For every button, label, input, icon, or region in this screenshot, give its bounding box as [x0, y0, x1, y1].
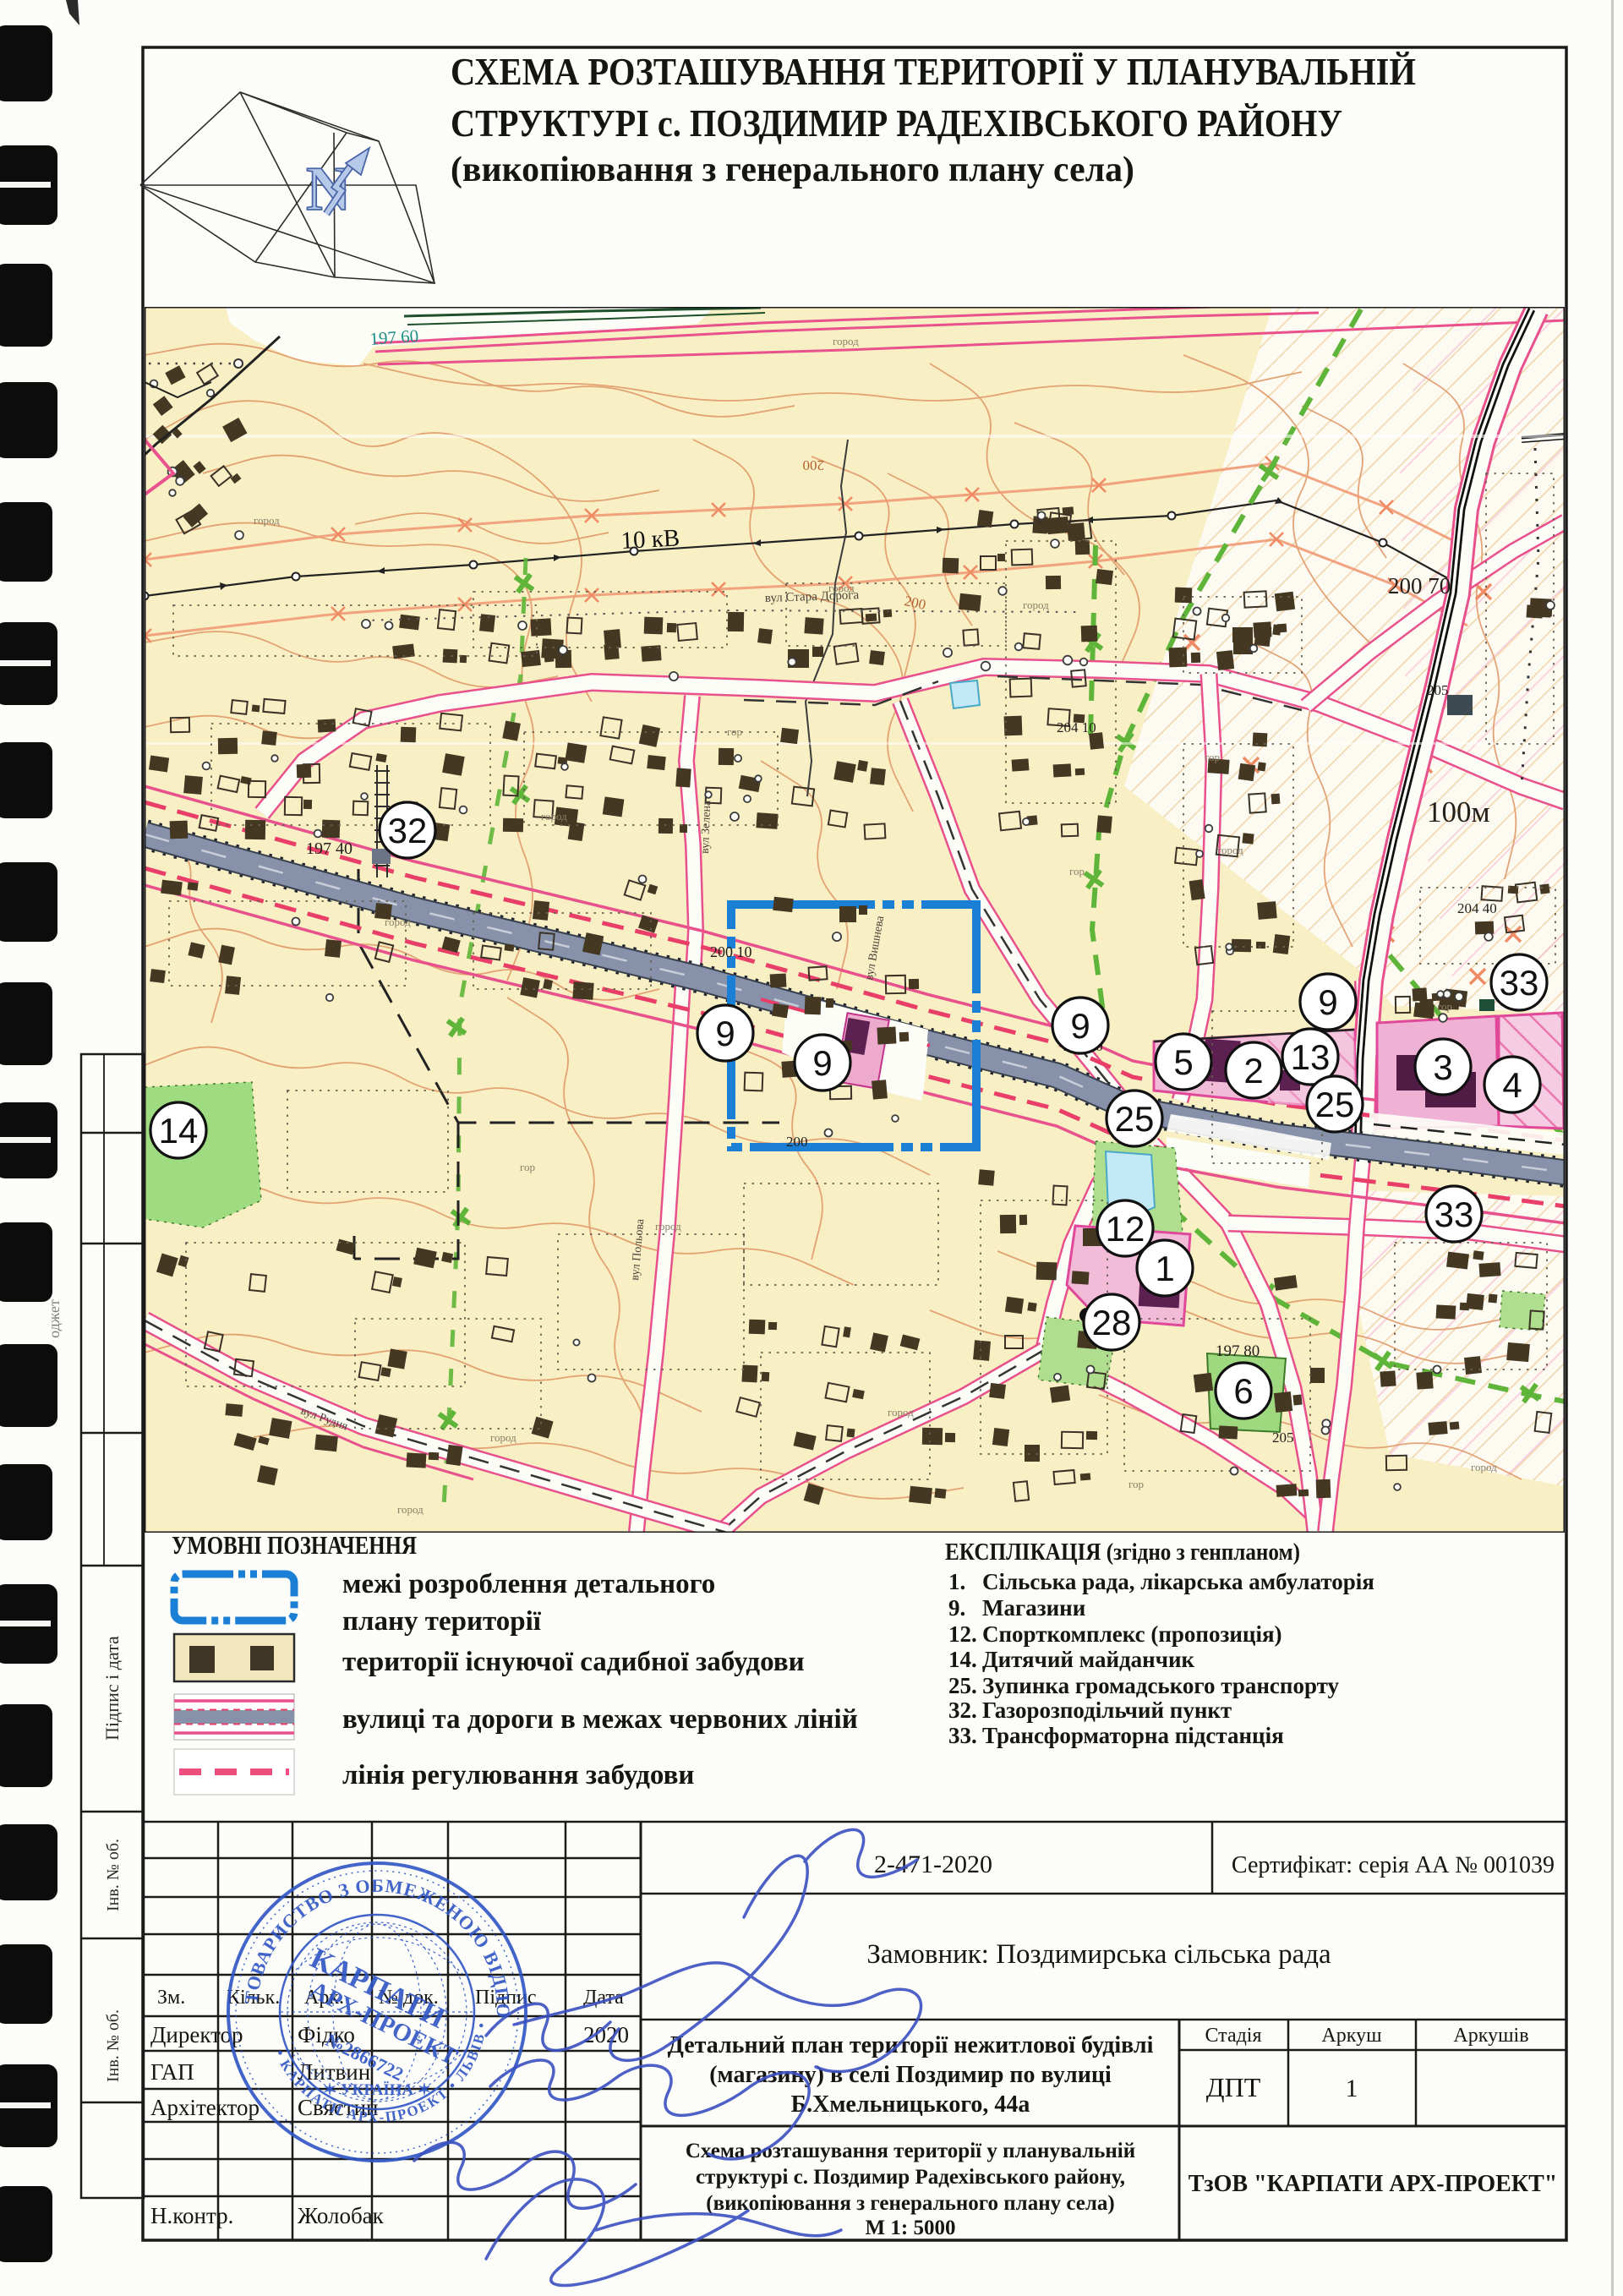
svg-text:Інв. № об.: Інв. № об.: [104, 1839, 123, 1911]
svg-text:200: 200: [803, 457, 825, 473]
svg-text:Сільська рада, лікарська амбул: Сільська рада, лікарська амбулаторія: [982, 1569, 1374, 1594]
svg-text:город: город: [1023, 599, 1049, 611]
svg-text:10 кВ: 10 кВ: [620, 524, 680, 555]
svg-text:3: 3: [1433, 1047, 1452, 1087]
svg-text:території існуючої садибної за: території існуючої садибної забудови: [342, 1647, 805, 1677]
svg-text:32.: 32.: [948, 1697, 977, 1723]
svg-text:(викопіювання з генерального п: (викопіювання з генерального плану села): [706, 2192, 1114, 2215]
svg-text:33: 33: [1500, 963, 1539, 1003]
svg-text:9: 9: [715, 1014, 735, 1053]
svg-text:плану території: плану території: [342, 1606, 542, 1637]
svg-text:город: город: [655, 1220, 681, 1233]
svg-text:Дитячий майданчик: Дитячий майданчик: [982, 1647, 1194, 1672]
svg-text:Підпис і дата: Підпис і дата: [101, 1636, 123, 1741]
svg-text:5: 5: [1173, 1042, 1193, 1082]
svg-text:Зупинка громадського транспорт: Зупинка громадського транспорту: [982, 1673, 1340, 1698]
svg-text:197 80: 197 80: [1216, 1342, 1260, 1360]
svg-text:1.: 1.: [948, 1569, 965, 1594]
svg-text:межі розроблення детального: межі розроблення детального: [342, 1569, 715, 1599]
svg-text:гор: гор: [1069, 865, 1085, 877]
svg-text:205: 205: [1272, 1430, 1294, 1446]
svg-text:Стадія: Стадія: [1205, 2025, 1261, 2047]
svg-text:Магазини: Магазини: [982, 1595, 1085, 1621]
svg-text:М 1: 5000: М 1: 5000: [866, 2217, 956, 2239]
svg-text:ЕКСПЛІКАЦІЯ (згідно з генплано: ЕКСПЛІКАЦІЯ (згідно з генпланом): [945, 1539, 1300, 1566]
svg-text:200 10: 200 10: [710, 943, 752, 960]
svg-text:город: город: [833, 335, 859, 347]
svg-text:город: город: [828, 582, 855, 594]
svg-text:Трансформаторна підстанція: Трансформаторна підстанція: [982, 1723, 1284, 1748]
svg-text:гор: гор: [1128, 1478, 1144, 1490]
svg-text:1: 1: [1155, 1249, 1174, 1288]
svg-text:9: 9: [1070, 1006, 1090, 1046]
svg-text:город: город: [385, 916, 411, 928]
svg-text:200 70: 200 70: [1388, 573, 1451, 599]
svg-text:Схема розташування території у: Схема розташування території у плануваль…: [686, 2140, 1135, 2162]
svg-text:9: 9: [812, 1043, 832, 1083]
svg-text:Зм.: Зм.: [157, 1987, 185, 2009]
svg-text:25.: 25.: [948, 1673, 977, 1698]
svg-text:Н.контр.: Н.контр.: [150, 2203, 233, 2228]
svg-text:Замовник: Поздимирська сільськ: Замовник: Поздимирська сільська рада: [866, 1939, 1331, 1970]
svg-text:25: 25: [1115, 1099, 1155, 1139]
svg-text:ДПТ: ДПТ: [1206, 2072, 1261, 2102]
svg-text:12.: 12.: [948, 1621, 977, 1647]
svg-text:Спорткомплекс (пропозиція): Спорткомплекс (пропозиція): [982, 1621, 1282, 1647]
svg-text:город: город: [1217, 844, 1243, 856]
svg-text:(викопіювання з генерального п: (викопіювання з генерального плану села): [451, 150, 1134, 189]
svg-text:197 60: 197 60: [369, 325, 419, 349]
svg-text:гор: гор: [1437, 1000, 1452, 1013]
svg-text:4: 4: [1502, 1065, 1522, 1105]
svg-text:13: 13: [1291, 1037, 1331, 1077]
svg-text:204 40: 204 40: [1457, 900, 1497, 916]
svg-text:1: 1: [1346, 2075, 1358, 2102]
svg-text:структурі с. Поздимир Радехівс: структурі с. Поздимир Радехівського райо…: [696, 2166, 1125, 2189]
svg-text:город: город: [254, 514, 280, 527]
svg-text:28: 28: [1092, 1303, 1132, 1342]
svg-text:город: город: [1471, 1461, 1497, 1473]
svg-text:✶ УКРАЇНА ✶: ✶ УКРАЇНА ✶: [323, 2081, 431, 2099]
svg-text:СТРУКТУРІ с. ПОЗДИМИР РАДЕХІВС: СТРУКТУРІ с. ПОЗДИМИР РАДЕХІВСЬКОГО РАЙО…: [451, 101, 1342, 145]
svg-text:гор: гор: [1205, 751, 1220, 763]
svg-text:14.: 14.: [948, 1647, 977, 1672]
svg-text:город: город: [888, 1406, 914, 1419]
svg-text:СХЕМА РОЗТАШУВАННЯ ТЕРИТОРІЇ У: СХЕМА РОЗТАШУВАННЯ ТЕРИТОРІЇ У ПЛАНУВАЛЬ…: [451, 50, 1416, 93]
svg-text:Інв. № об.: Інв. № об.: [104, 2009, 123, 2082]
svg-text:город: город: [541, 810, 567, 823]
svg-text:вулиці та дороги в межах черво: вулиці та дороги в межах червоних ліній: [342, 1704, 858, 1735]
svg-text:город: город: [490, 1431, 516, 1444]
svg-text:12: 12: [1106, 1209, 1145, 1249]
svg-text:33: 33: [1434, 1194, 1474, 1234]
svg-text:Газорозподільчий пункт: Газорозподільчий пункт: [982, 1697, 1232, 1723]
svg-text:Сертифікат: серія АА № 001039: Сертифікат: серія АА № 001039: [1232, 1852, 1555, 1878]
svg-text:6: 6: [1233, 1371, 1253, 1411]
svg-text:32: 32: [388, 811, 428, 850]
svg-text:Б.Хмельницького, 44а: Б.Хмельницького, 44а: [791, 2091, 1030, 2118]
svg-text:Аркуш: Аркуш: [1321, 2025, 1382, 2047]
svg-text:Жолобак: Жолобак: [298, 2203, 385, 2228]
svg-text:Архітектор: Архітектор: [150, 2095, 260, 2120]
svg-text:25: 25: [1315, 1085, 1355, 1124]
svg-text:200: 200: [786, 1134, 808, 1150]
svg-text:ТзОВ "КАРПАТИ АРХ-ПРОЕКТ": ТзОВ "КАРПАТИ АРХ-ПРОЕКТ": [1189, 2171, 1558, 2197]
svg-text:9.: 9.: [948, 1595, 965, 1621]
svg-text:ГАП: ГАП: [150, 2059, 194, 2085]
svg-text:гор: гор: [727, 725, 742, 738]
svg-text:2: 2: [1243, 1051, 1263, 1091]
svg-text:лінія регулювання забудови: лінія регулювання забудови: [342, 1760, 694, 1790]
svg-text:33.: 33.: [948, 1723, 977, 1748]
svg-text:вул Зелена: вул Зелена: [699, 800, 713, 854]
svg-text:Аркушів: Аркушів: [1453, 2025, 1528, 2047]
svg-text:197 40: 197 40: [306, 839, 352, 858]
svg-text:204 10: 204 10: [1057, 719, 1096, 735]
svg-text:205: 205: [1427, 682, 1449, 698]
svg-text:100м: 100м: [1427, 795, 1490, 828]
svg-text:14: 14: [159, 1111, 199, 1151]
svg-text:гор: гор: [520, 1161, 535, 1173]
svg-text:УМОВНІ ПОЗНАЧЕННЯ: УМОВНІ ПОЗНАЧЕННЯ: [172, 1530, 417, 1560]
svg-text:9: 9: [1318, 982, 1337, 1022]
svg-text:город: город: [397, 1503, 424, 1516]
svg-text:Детальний план території нежи: Детальний план території нежитлової буді…: [668, 2032, 1154, 2058]
svg-text:оджет: оджет: [46, 1299, 63, 1338]
